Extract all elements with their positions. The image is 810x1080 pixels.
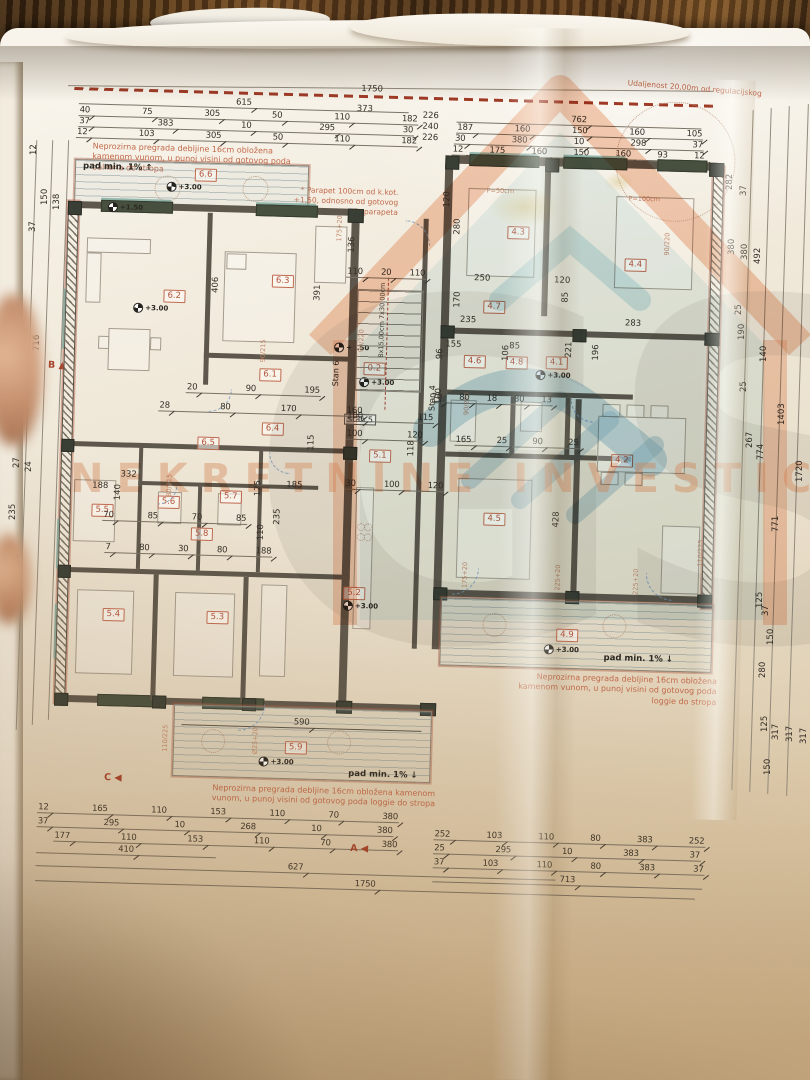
window-sill: [469, 154, 539, 168]
column: [440, 325, 454, 338]
bed: [75, 589, 134, 675]
room-label: 4.7: [483, 300, 505, 314]
column: [545, 158, 559, 172]
elevation-icon: [133, 303, 143, 313]
elevation-marker: +3.00: [258, 756, 293, 767]
chair: [626, 404, 644, 417]
room-label: 4.6: [464, 355, 486, 369]
room-label: 6.3: [272, 275, 294, 289]
dimension-value: 10: [310, 824, 323, 834]
dimension-value: 250: [474, 274, 490, 283]
pillow: [226, 253, 246, 270]
dimension-value: 252: [433, 830, 451, 840]
partition-note-loggia: Neprozirna pregrada debljine 16cm oblože…: [498, 671, 717, 708]
door-swing: [570, 399, 594, 423]
dimension-value: 85: [561, 292, 570, 303]
dimension-value: 182: [400, 137, 418, 147]
dimension-value: 25: [567, 438, 580, 448]
room-label: 4.1: [546, 356, 568, 370]
slope-label: pad min. 1% ↑: [83, 161, 153, 173]
column: [709, 163, 724, 177]
dimension-value: 37: [37, 817, 50, 827]
window-sill: [657, 159, 707, 172]
dimension-value: 110: [537, 833, 555, 843]
dimension-value: 110: [346, 267, 364, 277]
elevation-icon: [108, 202, 118, 212]
partition-wall: [150, 574, 159, 700]
dimension-value: 391: [313, 284, 322, 300]
dimension-value: 90: [531, 437, 544, 447]
dimension-value: 12: [76, 128, 89, 138]
dimension-value: 12: [452, 145, 465, 155]
chair: [602, 404, 620, 417]
dim-column: 226240226: [422, 111, 439, 143]
column: [68, 201, 82, 215]
dimension-value: 110: [333, 135, 351, 145]
dimension-value: 1720: [796, 460, 805, 482]
dimension-value: 50: [271, 133, 284, 143]
stair-note: 8x15,00cm 7x30,00cm: [378, 282, 387, 357]
door-tag: 90/220: [663, 233, 672, 256]
elevation-icon: [334, 342, 344, 352]
dimension-value: 280: [453, 218, 462, 234]
door-tag: Ø25+20: [251, 727, 260, 754]
elevation-icon: [535, 370, 545, 380]
dimension-value: 627: [287, 863, 305, 873]
dimension-value: 165: [454, 435, 472, 445]
dim-chain: 7803080188: [104, 540, 272, 558]
slope-label: pad min. 1% ↓: [348, 769, 418, 781]
dimension-value: 10: [561, 847, 574, 857]
room-label: 5.7: [220, 490, 242, 504]
dimension-value: 85: [146, 512, 159, 522]
dimension-value: 103: [138, 129, 156, 139]
shower: [520, 402, 543, 433]
dimension-value: 150: [767, 629, 776, 645]
dimension-value: 305: [205, 131, 223, 141]
door-tag: 175+20: [460, 562, 469, 588]
dimension-value: 100: [346, 429, 364, 439]
dimension-value: 771: [772, 516, 781, 532]
column: [343, 447, 357, 460]
room-label: 4.9: [556, 629, 578, 643]
dimension-value: 70: [327, 811, 340, 821]
door-tag: 225+20: [631, 569, 640, 595]
chair: [624, 472, 642, 485]
dimension-value: 106: [502, 345, 511, 361]
dimension-value: 185: [286, 481, 302, 490]
elevation-marker: +3.00: [133, 303, 168, 314]
dimension-value: 295: [494, 845, 512, 855]
dimension-value: 153: [186, 835, 204, 845]
dimension-value: 18: [485, 394, 498, 404]
dimension-value: 226: [422, 111, 439, 121]
dimension-value: 317: [800, 728, 809, 744]
dimension-value: 153: [209, 807, 227, 817]
partition-wall: [541, 166, 551, 316]
dimension-value: 7: [104, 542, 111, 552]
dimension-value: 110: [150, 806, 168, 816]
room-label: 4.5: [483, 513, 505, 527]
dimension-value: 103: [485, 831, 503, 841]
dimension-value: 713: [558, 875, 576, 885]
room-label: 5.8: [191, 527, 213, 541]
bed: [173, 592, 235, 678]
dimension-value: 37: [433, 858, 446, 868]
dimension-value: 80: [219, 403, 232, 413]
room-label: 5.4: [102, 608, 124, 622]
room-label: 4.4: [624, 258, 646, 272]
room-label: 4.2: [611, 454, 633, 468]
dimension-value: 170: [453, 291, 462, 307]
wardrobe: [259, 584, 288, 677]
dimension-value: 80: [589, 834, 602, 844]
partition-wall: [64, 567, 350, 580]
dimension-value: 283: [625, 319, 641, 328]
dimension-value: 383: [636, 835, 654, 845]
dim-chain: 2880170160: [158, 398, 363, 417]
dimension-value: 177: [53, 831, 71, 841]
dimension-value: 406: [212, 277, 221, 293]
dimension-value: 110: [408, 269, 426, 279]
dimension-value: 150: [764, 759, 773, 775]
dimension-value: 155: [445, 340, 461, 349]
dimension-value: 100: [346, 411, 364, 421]
door-tag: 90/220: [462, 392, 471, 415]
slope-label: pad min. 1% ↓: [603, 653, 673, 665]
window-tag: P=100cm: [628, 194, 660, 203]
room-label: 5.2: [343, 587, 365, 601]
elevation-marker: +3.00: [343, 601, 378, 612]
dim-chain: 100115: [346, 409, 434, 424]
dimension-value: 125: [254, 480, 263, 496]
room-label: 5.9: [285, 741, 307, 755]
door-tag: 175+20: [335, 215, 344, 241]
dimension-value: 37: [692, 865, 705, 875]
dim-chain: 7080188013: [431, 390, 553, 406]
dimension-value: 235: [460, 316, 476, 325]
dimension-value: 380: [381, 812, 399, 822]
table: [107, 328, 150, 371]
partition-wall: [570, 399, 582, 599]
dimension-value: 196: [592, 344, 601, 360]
window-sill: [256, 204, 318, 218]
column: [58, 565, 71, 578]
room-label: 6.1: [259, 368, 281, 382]
door-tag: 90/220: [357, 329, 366, 352]
dimension-value: 1750: [354, 880, 377, 890]
room-label: 4.3: [507, 226, 529, 240]
elevation-icon: [343, 601, 353, 611]
photographed-floor-plan: 12 150 138 37 716 716 27 24 235 10 605 B…: [0, 0, 810, 1080]
door-tag: 80/215: [165, 474, 174, 497]
dimension-value: 96: [436, 348, 445, 359]
dimension-value: 317: [786, 726, 795, 742]
door-tag: 225+20: [553, 564, 562, 590]
dimension-value: 110: [535, 861, 553, 871]
dimension-value: 188: [92, 482, 108, 491]
dimension-value: 120: [427, 481, 445, 491]
room-label: 5.3: [206, 611, 228, 625]
dimension-value: 13: [540, 396, 553, 406]
apartment-label: Stan 6: [331, 360, 341, 386]
room-label: 6.5: [197, 437, 219, 451]
door-tag: 90/215: [259, 339, 268, 362]
dimension-value: 383: [638, 863, 656, 873]
chair: [600, 472, 618, 485]
section-marker-c: C ◀: [104, 772, 122, 783]
room-label: 6.2: [163, 290, 185, 304]
dimension-value: 37: [688, 851, 701, 861]
dim-chain: 11020110: [346, 265, 426, 280]
dimension-value: 80: [138, 543, 151, 553]
bed: [614, 196, 695, 290]
dim-chain: 70857085: [102, 508, 247, 525]
dimension-value: 226: [422, 133, 439, 143]
partition-wall: [240, 577, 249, 703]
dimension-value: 10: [173, 821, 186, 831]
dimension-value: 80: [216, 546, 229, 556]
chair: [650, 405, 668, 418]
dimension-value: 110: [253, 837, 271, 847]
dimension-value: 28: [158, 401, 171, 411]
dimension-value: 221: [565, 342, 574, 358]
dimension-value: 118: [407, 440, 416, 456]
door-tag: 110/225: [161, 725, 170, 752]
dimension-value: 100: [435, 388, 444, 404]
section-marker-a: A ◀: [350, 843, 368, 854]
dimension-value: 80: [589, 862, 602, 872]
dimension-value: 140: [114, 484, 123, 500]
door-tag: 110/225: [696, 539, 705, 566]
chair: [150, 337, 161, 350]
dimension-value: 115: [416, 413, 434, 423]
dimension-value: 380: [380, 840, 398, 850]
dimension-value: 317: [772, 724, 781, 740]
dimension-value: 410: [117, 845, 135, 855]
dimension-value: 136: [348, 236, 357, 252]
dimension-value: 332: [120, 470, 136, 479]
dimension-value: 615: [235, 98, 253, 108]
column: [704, 333, 719, 346]
room-label: 6.6: [195, 168, 217, 182]
sofa: [85, 252, 101, 302]
dimension-value: 110: [257, 524, 266, 540]
dimension-value: 12: [37, 803, 50, 813]
elevation-marker: +1.50: [108, 202, 143, 213]
dimension-value: 252: [688, 837, 706, 847]
window-sill: [563, 157, 627, 171]
dimension-value: 80: [513, 395, 526, 405]
dimension-value: 85: [235, 514, 248, 524]
dimension-value: 70: [102, 510, 115, 520]
column: [61, 439, 74, 452]
elevation-icon: [258, 756, 268, 766]
dimension-value: 165: [91, 804, 109, 814]
dimension-value: 188: [255, 547, 273, 557]
dimension-value: 235: [273, 508, 282, 524]
dimension-value: 100: [383, 480, 401, 490]
regulation-note: Udaljenost 20,00m od regulacijskog: [627, 78, 787, 101]
room-label: 6.4: [262, 422, 284, 436]
dimension-value: 20: [380, 268, 393, 278]
dimension-value: 120: [554, 276, 570, 285]
dimension-value: 428: [552, 511, 561, 527]
dimension-value: 240: [422, 122, 439, 132]
column: [152, 695, 166, 708]
dimension-value: 383: [622, 849, 640, 859]
column: [445, 155, 459, 169]
dimension-value: 1750: [361, 85, 383, 94]
elevation-marker: +3.00: [535, 370, 570, 381]
dimension-value: 110: [120, 833, 138, 843]
room-label: 5.1: [369, 449, 391, 463]
door-swing: [269, 453, 291, 475]
floor-plan: Udaljenost 20,00m od regulacijskog 615 1…: [0, 47, 782, 920]
dim-chain: 165259025: [454, 433, 579, 449]
elevation-marker: +3.00: [544, 644, 579, 655]
sofa: [87, 237, 151, 254]
dimension-value: 30: [344, 479, 357, 489]
dimension-value: 20: [186, 383, 199, 393]
chair: [98, 336, 109, 349]
dimension-value: 103: [481, 859, 499, 869]
window-tag: P=50cm: [486, 186, 514, 195]
column: [572, 329, 586, 342]
dimension-value: 90: [244, 384, 257, 394]
elevation-icon: [544, 644, 554, 654]
column: [54, 693, 68, 706]
dimension-value: 295: [102, 819, 120, 829]
dimension-value: 170: [280, 404, 298, 414]
dimension-value: 120: [443, 191, 452, 207]
partition-wall: [203, 213, 213, 385]
dimension-value: 110: [268, 809, 286, 819]
dimension-value: 70: [191, 513, 204, 523]
column: [348, 209, 364, 223]
dimension-value: 1403: [778, 403, 787, 425]
dimension-value: 115: [307, 434, 316, 450]
dimension-value: 380: [376, 826, 394, 836]
dim-chain: 2090195: [186, 380, 321, 397]
dimension-value: 590: [293, 718, 311, 728]
dimension-value: 268: [239, 822, 257, 832]
dimension-value: 25: [495, 436, 508, 446]
dimension-value: 25: [433, 844, 446, 854]
dimension-value: 195: [303, 386, 321, 396]
dim-chain: 30100120: [344, 477, 444, 493]
dimension-value: 30: [177, 544, 190, 554]
dimension-value: 70: [319, 839, 332, 849]
